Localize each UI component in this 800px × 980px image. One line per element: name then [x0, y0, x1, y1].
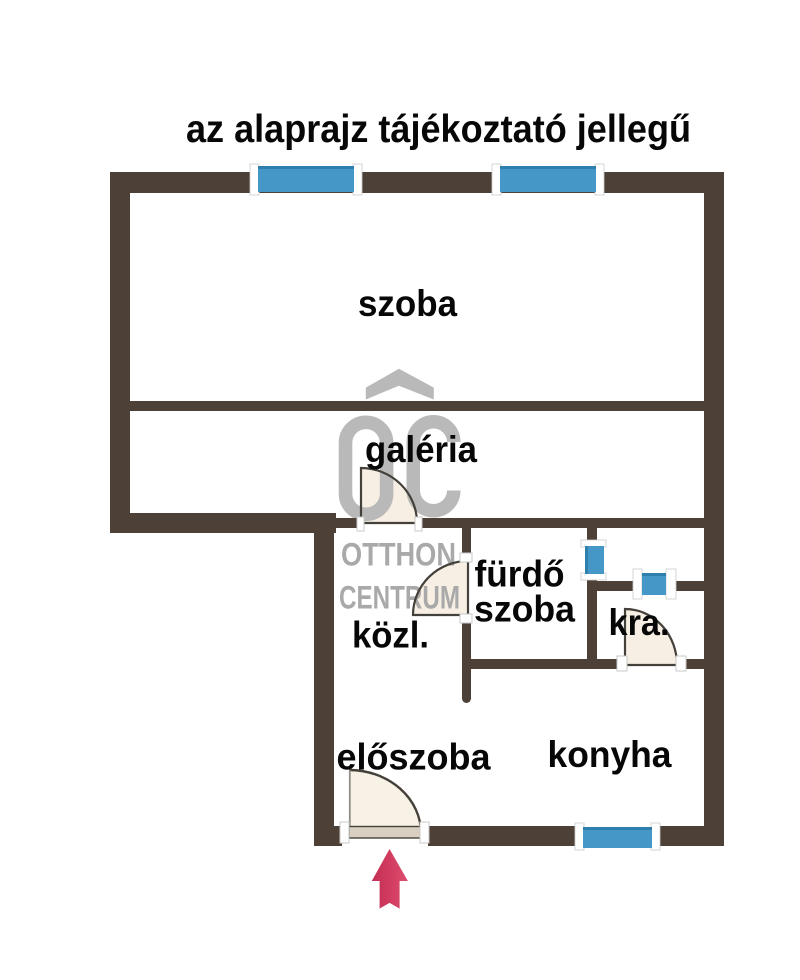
svg-text:CENTRUM: CENTRUM	[339, 580, 460, 616]
svg-text:OTTHON: OTTHON	[341, 537, 456, 573]
svg-text:szoba: szoba	[358, 283, 457, 324]
svg-text:az alaprajz tájékoztató jelleg: az alaprajz tájékoztató jellegű	[186, 108, 691, 151]
svg-text:galéria: galéria	[365, 429, 477, 470]
svg-text:szoba: szoba	[474, 589, 575, 630]
svg-text:kra.: kra.	[609, 602, 670, 643]
svg-text:előszoba: előszoba	[337, 737, 491, 778]
svg-text:közl.: közl.	[352, 615, 429, 656]
svg-text:konyha: konyha	[548, 734, 672, 775]
